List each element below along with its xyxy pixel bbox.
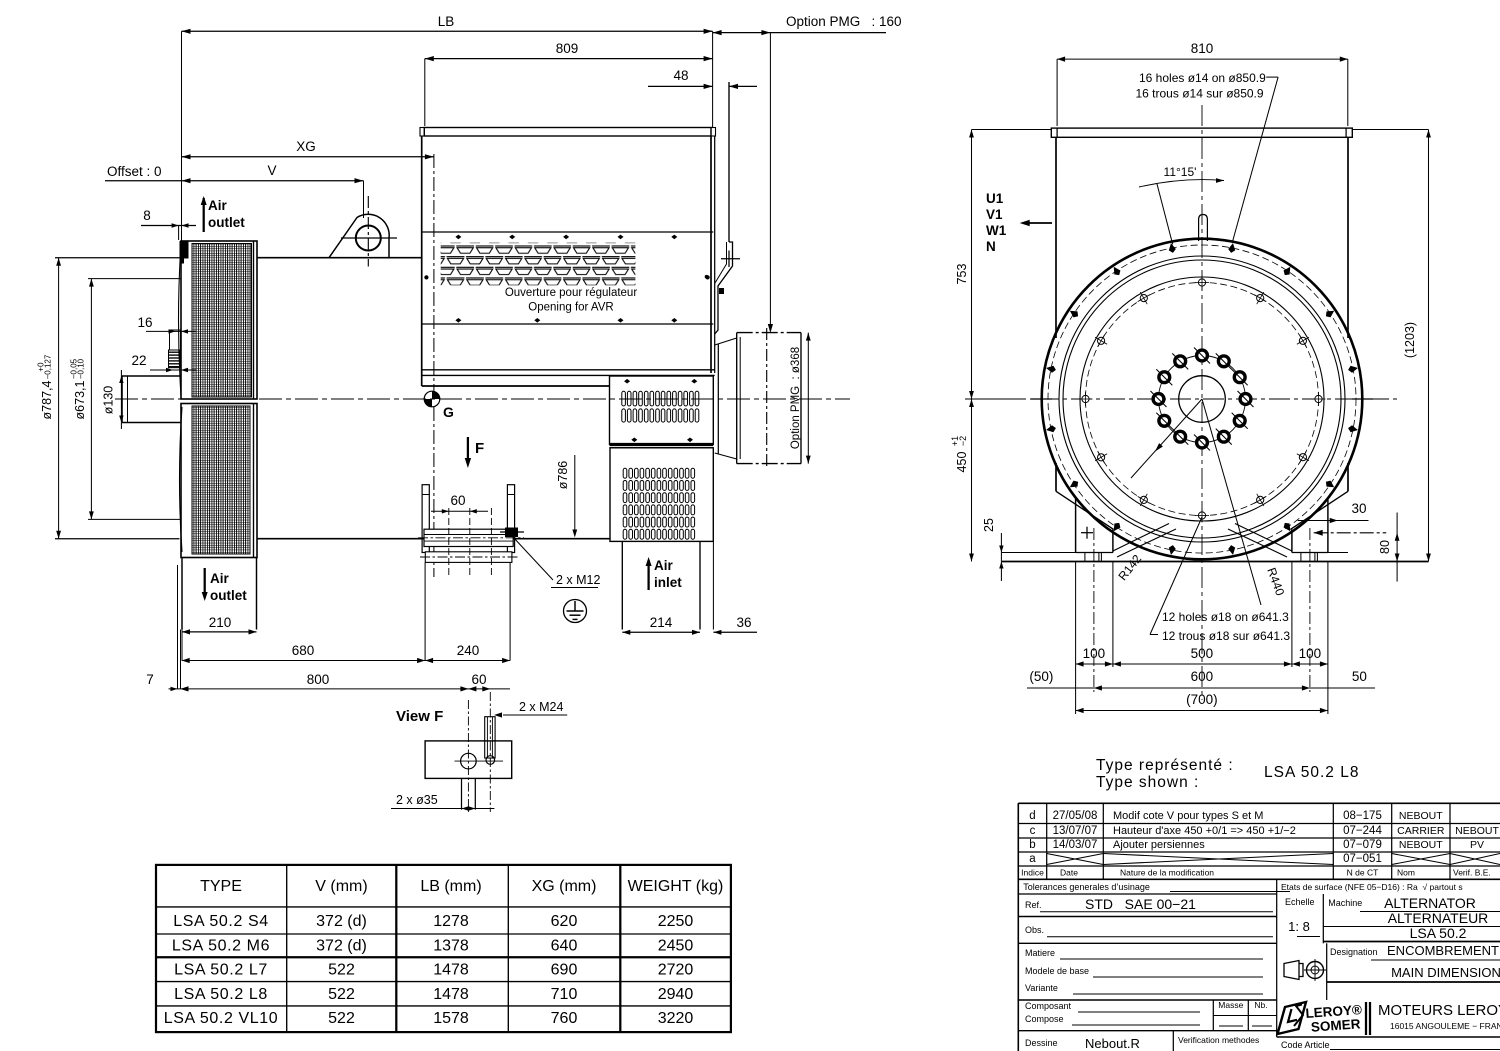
svg-text:2720: 2720 [658, 962, 694, 979]
svg-text:Compose: Compose [1025, 1014, 1064, 1024]
svg-text:Designation: Designation [1330, 947, 1378, 957]
svg-text:Modele de base: Modele de base [1025, 966, 1089, 976]
svg-text:MAIN DIMENSION: MAIN DIMENSION [1391, 965, 1500, 980]
svg-text:2 x ø35: 2 x ø35 [396, 793, 438, 807]
svg-text:LSA 50.2 L7: LSA 50.2 L7 [174, 962, 268, 979]
svg-text:Ajouter persiennes: Ajouter persiennes [1113, 839, 1205, 851]
svg-text:Code Article: Code Article [1281, 1040, 1330, 1050]
svg-text:G: G [443, 404, 454, 420]
svg-text:ø787,4: ø787,4 [40, 380, 54, 419]
svg-text:LB: LB [438, 14, 455, 29]
svg-text:60: 60 [450, 493, 465, 508]
svg-text:Offset : 0: Offset : 0 [107, 164, 162, 179]
svg-text:800: 800 [307, 672, 330, 687]
svg-text:760: 760 [551, 1010, 578, 1027]
svg-text:2 x M24: 2 x M24 [519, 700, 564, 714]
svg-text:522: 522 [328, 1010, 355, 1027]
svg-text:Date: Date [1060, 868, 1078, 878]
svg-text:PV: PV [1470, 839, 1484, 851]
svg-text:Tolerances generales d’usinage: Tolerances generales d’usinage [1023, 882, 1150, 892]
svg-text:710: 710 [551, 986, 578, 1003]
svg-text:16 holes ø14 on ø850.9: 16 holes ø14 on ø850.9 [1139, 71, 1266, 85]
svg-text:80: 80 [1378, 540, 1392, 554]
svg-text:12 holes ø18 on ø641.3: 12 holes ø18 on ø641.3 [1162, 610, 1289, 624]
svg-text:N: N [986, 239, 996, 254]
svg-text:Air: Air [210, 571, 230, 586]
svg-text:640: 640 [551, 938, 578, 955]
svg-text:LSA 50.2 L8: LSA 50.2 L8 [1264, 764, 1359, 781]
svg-text:Hauteur d'axe 450 +0/1 => 450: Hauteur d'axe 450 +0/1 => 450 +1/−2 [1113, 825, 1296, 837]
svg-text:ALTERNATEUR: ALTERNATEUR [1388, 910, 1489, 926]
svg-text:N de CT: N de CT [1347, 868, 1379, 878]
svg-text:810: 810 [1191, 41, 1214, 56]
svg-text:07−079: 07−079 [1343, 839, 1382, 851]
svg-text:50: 50 [1352, 669, 1367, 684]
svg-text:U1: U1 [986, 191, 1004, 206]
svg-text:ø673,1: ø673,1 [73, 380, 87, 419]
svg-text:1: 8: 1: 8 [1288, 919, 1310, 934]
svg-text:XG (mm): XG (mm) [532, 878, 597, 895]
svg-text:View F: View F [396, 708, 443, 725]
svg-text:V (mm): V (mm) [315, 878, 367, 895]
svg-text:outlet: outlet [208, 215, 245, 230]
svg-text:(700): (700) [1186, 692, 1218, 707]
svg-text:Option PMG : 160: Option PMG : 160 [786, 14, 902, 29]
svg-text:11°15': 11°15' [1164, 165, 1197, 179]
svg-text:ø130: ø130 [102, 386, 116, 415]
svg-text:60: 60 [471, 672, 486, 687]
svg-text:Masse: Masse [1218, 1000, 1243, 1010]
svg-text:inlet: inlet [654, 575, 682, 590]
svg-text:Type représenté :: Type représenté : [1096, 757, 1234, 774]
svg-text:2 x M12: 2 x M12 [556, 573, 601, 587]
svg-text:LSA 50.2 VL10: LSA 50.2 VL10 [164, 1010, 279, 1027]
svg-text:600: 600 [1191, 669, 1214, 684]
svg-text:TYPE: TYPE [200, 878, 242, 895]
svg-text:16 trous ø14 sur ø850.9: 16 trous ø14 sur ø850.9 [1136, 87, 1264, 101]
svg-text:STD SAE 00−21: STD SAE 00−21 [1085, 896, 1196, 912]
svg-text:c: c [1030, 825, 1036, 837]
svg-text:Dessine: Dessine [1025, 1038, 1058, 1048]
svg-text:V: V [267, 163, 276, 178]
svg-text:Etats de surface (NFE 05−D16): Etats de surface (NFE 05−D16) : Ra √ par… [1281, 882, 1463, 892]
svg-text:12 trous ø18 sur ø641.3: 12 trous ø18 sur ø641.3 [1162, 629, 1290, 643]
svg-text:2250: 2250 [658, 913, 694, 930]
svg-text:ENCOMBREMENT: ENCOMBREMENT [1387, 943, 1499, 958]
svg-text:1578: 1578 [433, 1010, 469, 1027]
svg-text:LSA 50.2: LSA 50.2 [1410, 925, 1467, 941]
svg-text:690: 690 [551, 962, 578, 979]
svg-text:LSA 50.2 M6: LSA 50.2 M6 [172, 938, 270, 955]
svg-text:V1: V1 [986, 207, 1003, 222]
svg-text:25: 25 [982, 518, 996, 532]
svg-text:Verif. B.E.: Verif. B.E. [1453, 868, 1491, 878]
svg-text:16: 16 [137, 315, 152, 330]
svg-text:22: 22 [131, 353, 146, 368]
svg-text:2450: 2450 [658, 938, 694, 955]
svg-text:Matiere: Matiere [1025, 948, 1055, 958]
svg-text:Nom: Nom [1397, 868, 1415, 878]
svg-text:500: 500 [1191, 646, 1214, 661]
svg-text:522: 522 [328, 962, 355, 979]
svg-text:NEBOUT: NEBOUT [1399, 810, 1443, 822]
svg-text:13/07/07: 13/07/07 [1053, 825, 1098, 837]
svg-text:240: 240 [457, 643, 480, 658]
svg-text:1278: 1278 [433, 913, 469, 930]
svg-text:−0,10: −0,10 [77, 358, 86, 379]
svg-text:outlet: outlet [210, 588, 247, 603]
svg-text:MOTEURS LEROY−: MOTEURS LEROY− [1378, 1002, 1500, 1019]
svg-text:Machine: Machine [1328, 898, 1362, 908]
svg-text:Indice: Indice [1021, 868, 1044, 878]
svg-text:ALTERNATOR: ALTERNATOR [1384, 895, 1476, 911]
svg-text:Type shown :: Type shown : [1096, 774, 1199, 791]
svg-text:214: 214 [650, 615, 673, 630]
svg-text:Echelle: Echelle [1285, 897, 1315, 907]
svg-text:Nebout.R: Nebout.R [1085, 1036, 1140, 1051]
svg-text:LB (mm): LB (mm) [420, 878, 481, 895]
svg-text:210: 210 [209, 615, 232, 630]
svg-text:XG: XG [296, 139, 316, 154]
svg-text:7: 7 [146, 672, 154, 687]
svg-text:680: 680 [292, 643, 315, 658]
svg-text:(50): (50) [1029, 669, 1053, 684]
svg-text:Opening for AVR: Opening for AVR [528, 302, 613, 314]
svg-text:NEBOUT: NEBOUT [1399, 839, 1443, 851]
svg-text:ø786: ø786 [556, 461, 570, 490]
svg-text:Composant: Composant [1025, 1001, 1072, 1011]
svg-text:b: b [1029, 839, 1035, 851]
svg-text:Verification methodes: Verification methodes [1178, 1035, 1259, 1045]
svg-text:Air: Air [208, 198, 228, 213]
svg-text:809: 809 [556, 41, 579, 56]
svg-text:W1: W1 [986, 223, 1007, 238]
svg-text:F: F [475, 440, 484, 457]
svg-text:372 (d): 372 (d) [316, 938, 367, 955]
svg-text:36: 36 [736, 615, 751, 630]
svg-text:LSA 50.2 S4: LSA 50.2 S4 [173, 913, 269, 930]
svg-text:100: 100 [1299, 646, 1322, 661]
svg-text:Nature de la modification: Nature de la modification [1120, 868, 1214, 878]
svg-text:LSA 50.2 L8: LSA 50.2 L8 [174, 986, 268, 1003]
svg-text:Modif cote V pour types S et M: Modif cote V pour types S et M [1113, 810, 1263, 822]
svg-text:14/03/07: 14/03/07 [1053, 839, 1098, 851]
svg-text:Ouverture pour régulateur: Ouverture pour régulateur [505, 287, 637, 299]
svg-text:522: 522 [328, 986, 355, 1003]
svg-text:07−244: 07−244 [1343, 825, 1382, 837]
svg-text:8: 8 [143, 208, 151, 223]
svg-text:(1203): (1203) [1403, 322, 1417, 358]
svg-text:d: d [1029, 810, 1035, 822]
svg-text:−0,127: −0,127 [44, 354, 53, 379]
svg-text:48: 48 [673, 68, 688, 83]
svg-text:450: 450 [955, 452, 969, 473]
svg-text:−2: −2 [958, 436, 968, 446]
svg-text:Air: Air [654, 558, 674, 573]
svg-text:CARRIER: CARRIER [1397, 825, 1445, 837]
svg-text:NEBOUT: NEBOUT [1455, 825, 1499, 837]
svg-text:Nb.: Nb. [1254, 1000, 1267, 1010]
svg-text:08−175: 08−175 [1343, 810, 1382, 822]
svg-text:1478: 1478 [433, 962, 469, 979]
svg-text:Variante: Variante [1025, 983, 1058, 993]
svg-text:2940: 2940 [658, 986, 694, 1003]
svg-text:Obs.: Obs. [1025, 925, 1044, 935]
svg-text:Ref.: Ref. [1025, 900, 1042, 910]
svg-text:620: 620 [551, 913, 578, 930]
svg-text:753: 753 [955, 264, 969, 285]
svg-text:30: 30 [1351, 501, 1366, 516]
svg-text:a: a [1029, 853, 1036, 865]
svg-text:1378: 1378 [433, 938, 469, 955]
svg-text:3220: 3220 [658, 1010, 694, 1027]
svg-text:372 (d): 372 (d) [316, 913, 367, 930]
svg-text:16015 ANGOULEME − FRANC: 16015 ANGOULEME − FRANC [1390, 1021, 1500, 1031]
svg-text:WEIGHT (kg): WEIGHT (kg) [628, 878, 724, 895]
svg-text:1478: 1478 [433, 986, 469, 1003]
svg-text:27/05/08: 27/05/08 [1053, 810, 1098, 822]
svg-text:07−051: 07−051 [1343, 853, 1382, 865]
svg-text:Option PMG : ø368: Option PMG : ø368 [790, 347, 802, 449]
svg-text:100: 100 [1083, 646, 1106, 661]
